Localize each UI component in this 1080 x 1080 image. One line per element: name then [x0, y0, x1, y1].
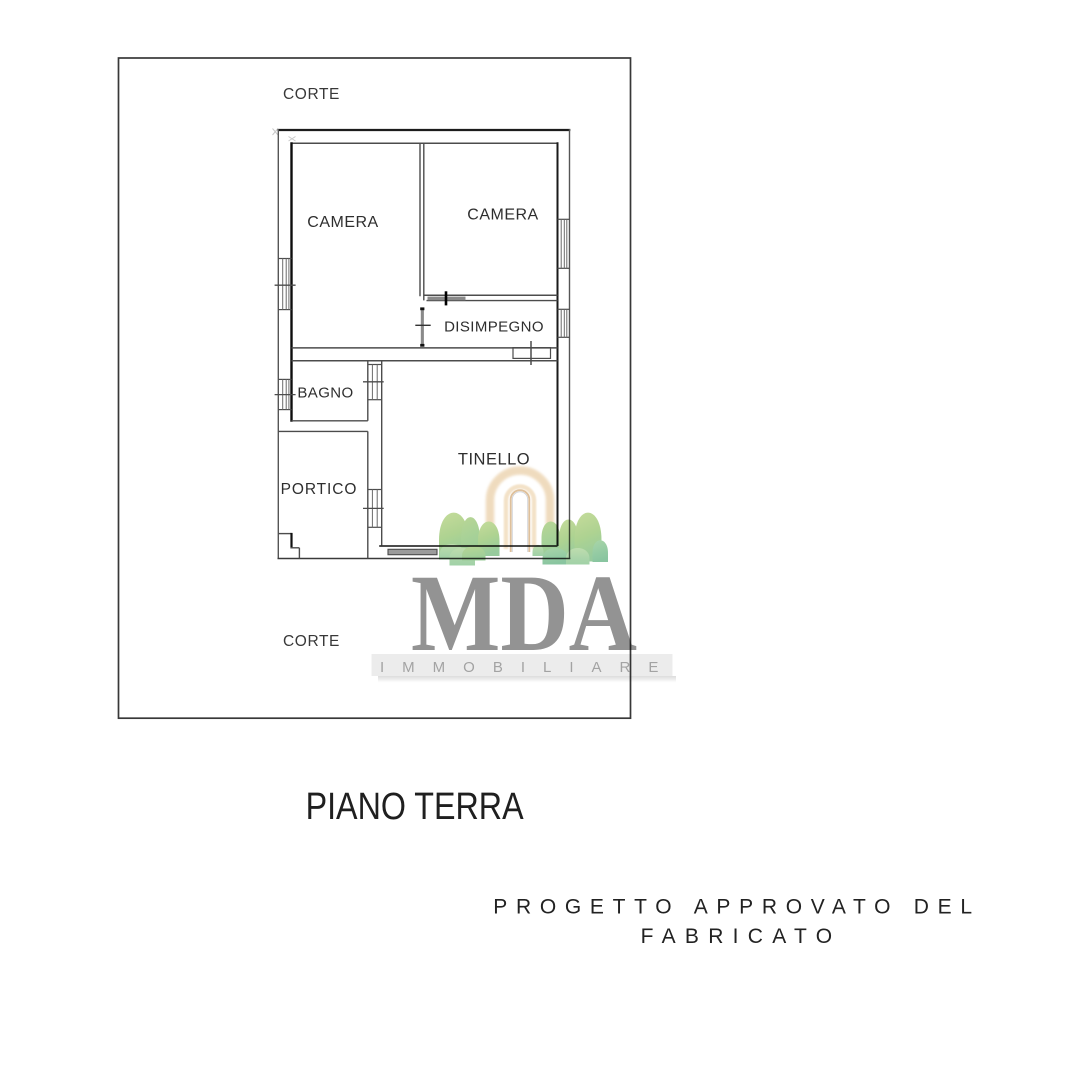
svg-text:PROGETTO APPROVATO DEL: PROGETTO APPROVATO DEL [493, 896, 980, 919]
svg-text:IMMOBILIARE: IMMOBILIARE [380, 659, 676, 676]
svg-text:BAGNO: BAGNO [297, 385, 353, 402]
svg-text:CAMERA: CAMERA [307, 214, 378, 231]
svg-text:CAMERA: CAMERA [467, 207, 538, 224]
svg-text:CORTE: CORTE [283, 633, 340, 650]
svg-text:DISIMPEGNO: DISIMPEGNO [444, 319, 544, 336]
svg-text:PORTICO: PORTICO [281, 481, 358, 498]
svg-text:FABRICATO: FABRICATO [641, 925, 842, 948]
svg-text:CORTE: CORTE [283, 86, 340, 103]
svg-text:PIANO TERRA: PIANO TERRA [306, 786, 525, 828]
svg-text:TINELLO: TINELLO [458, 451, 530, 469]
